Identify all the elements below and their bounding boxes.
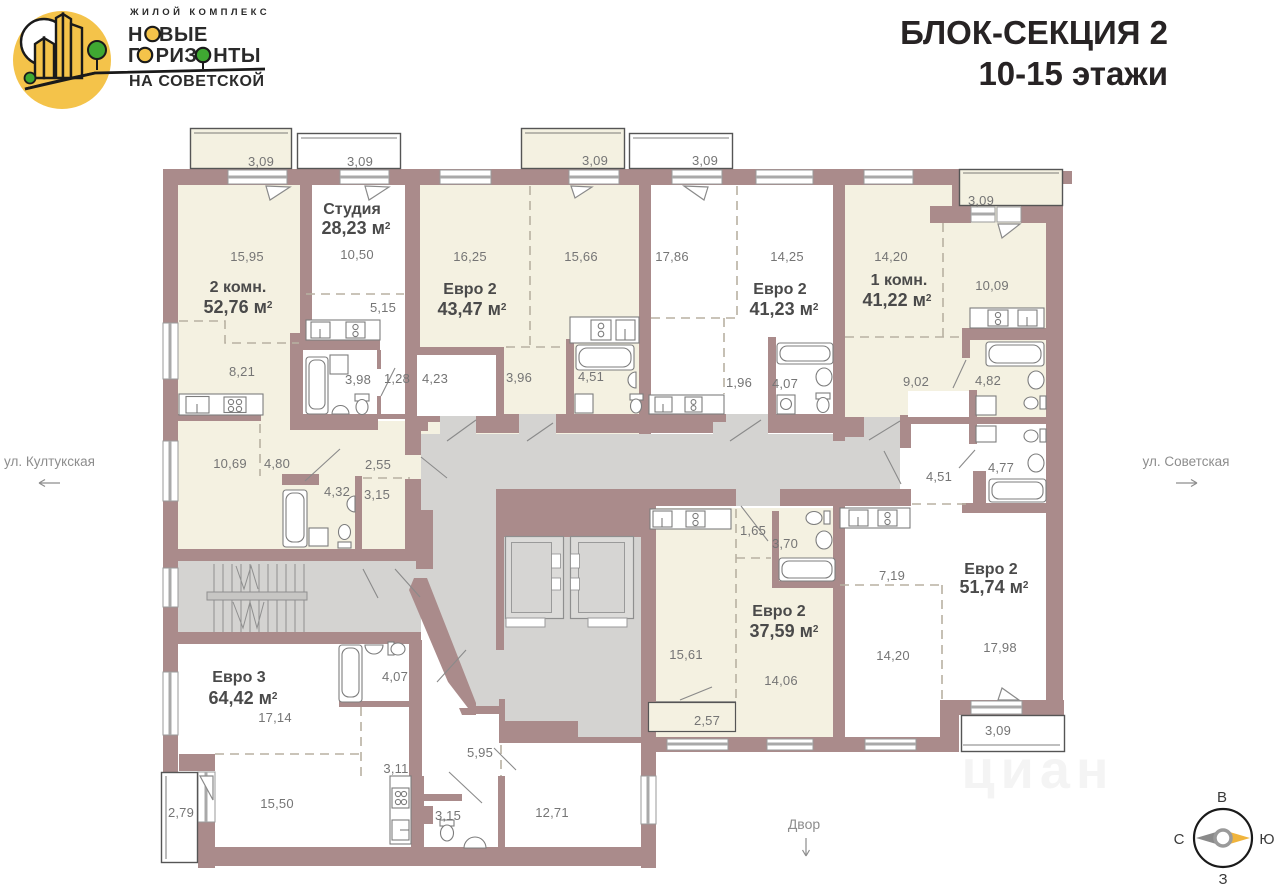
svg-text:15,66: 15,66 xyxy=(564,249,598,264)
svg-text:4,80: 4,80 xyxy=(264,456,290,471)
svg-text:12,71: 12,71 xyxy=(535,805,569,820)
svg-text:14,20: 14,20 xyxy=(874,249,908,264)
svg-text:Ю: Ю xyxy=(1259,831,1274,848)
svg-text:1 комн.: 1 комн. xyxy=(871,272,928,289)
svg-text:7,19: 7,19 xyxy=(879,568,905,583)
svg-text:Евро 2: Евро 2 xyxy=(964,561,1018,578)
svg-text:64,42 м2: 64,42 м2 xyxy=(209,688,278,708)
svg-text:3,09: 3,09 xyxy=(692,153,718,168)
svg-text:3,09: 3,09 xyxy=(347,154,373,169)
svg-text:41,22 м2: 41,22 м2 xyxy=(863,290,932,310)
svg-text:17,86: 17,86 xyxy=(655,249,689,264)
svg-text:Евро 2: Евро 2 xyxy=(752,603,806,620)
svg-text:15,61: 15,61 xyxy=(669,647,703,662)
svg-text:Евро 2: Евро 2 xyxy=(443,281,497,298)
svg-text:41,23 м2: 41,23 м2 xyxy=(750,299,819,319)
svg-text:14,06: 14,06 xyxy=(764,673,798,688)
svg-text:8,21: 8,21 xyxy=(229,364,255,379)
svg-text:2,79: 2,79 xyxy=(168,805,194,820)
svg-text:З: З xyxy=(1218,871,1227,886)
svg-text:3,96: 3,96 xyxy=(506,370,532,385)
svg-text:52,76 м2: 52,76 м2 xyxy=(204,297,273,317)
svg-text:ул. Советская: ул. Советская xyxy=(1143,454,1230,469)
svg-text:3,98: 3,98 xyxy=(345,372,371,387)
svg-text:1,96: 1,96 xyxy=(726,375,752,390)
svg-text:3,09: 3,09 xyxy=(968,193,994,208)
svg-text:17,14: 17,14 xyxy=(258,710,292,725)
svg-text:ул. Култукская: ул. Култукская xyxy=(4,454,95,469)
svg-text:1,65: 1,65 xyxy=(740,523,766,538)
svg-text:3,70: 3,70 xyxy=(772,536,798,551)
svg-text:4,77: 4,77 xyxy=(988,460,1014,475)
svg-text:3,15: 3,15 xyxy=(435,808,461,823)
svg-text:циан: циан xyxy=(961,740,1114,800)
svg-text:3,09: 3,09 xyxy=(248,154,274,169)
svg-text:16,25: 16,25 xyxy=(453,249,487,264)
svg-text:НА СОВЕТСКОЙ: НА СОВЕТСКОЙ xyxy=(129,71,265,90)
svg-text:4,51: 4,51 xyxy=(578,369,604,384)
svg-text:4,07: 4,07 xyxy=(382,669,408,684)
svg-text:НОВЫЕ: НОВЫЕ xyxy=(128,24,208,46)
svg-text:2,57: 2,57 xyxy=(694,713,720,728)
svg-text:5,15: 5,15 xyxy=(370,300,396,315)
svg-text:Евро 3: Евро 3 xyxy=(212,669,266,686)
svg-text:15,50: 15,50 xyxy=(260,796,294,811)
svg-text:4,23: 4,23 xyxy=(422,371,448,386)
svg-text:3,09: 3,09 xyxy=(582,153,608,168)
svg-text:14,25: 14,25 xyxy=(770,249,804,264)
svg-text:10,50: 10,50 xyxy=(340,247,374,262)
svg-text:Двор: Двор xyxy=(788,816,821,832)
svg-text:9,02: 9,02 xyxy=(903,374,929,389)
svg-text:43,47 м2: 43,47 м2 xyxy=(438,299,507,319)
svg-text:51,74 м2: 51,74 м2 xyxy=(960,577,1029,597)
svg-text:Студия: Студия xyxy=(323,201,381,218)
svg-text:10,69: 10,69 xyxy=(213,456,247,471)
svg-text:10,09: 10,09 xyxy=(975,278,1009,293)
svg-text:3,15: 3,15 xyxy=(364,487,390,502)
svg-text:28,23 м2: 28,23 м2 xyxy=(322,218,391,238)
svg-text:2,55: 2,55 xyxy=(365,457,391,472)
svg-text:10-15 этажи: 10-15 этажи xyxy=(978,55,1168,92)
svg-text:4,32: 4,32 xyxy=(324,484,350,499)
svg-text:4,82: 4,82 xyxy=(975,373,1001,388)
svg-text:3,11: 3,11 xyxy=(383,761,408,776)
svg-text:В: В xyxy=(1217,789,1227,806)
svg-text:17,98: 17,98 xyxy=(983,640,1017,655)
svg-text:4,07: 4,07 xyxy=(772,376,798,391)
svg-text:4,51: 4,51 xyxy=(926,469,952,484)
svg-text:14,20: 14,20 xyxy=(876,648,910,663)
svg-text:2 комн.: 2 комн. xyxy=(210,279,267,296)
svg-text:Евро 2: Евро 2 xyxy=(753,281,807,298)
svg-text:15,95: 15,95 xyxy=(230,249,264,264)
svg-text:ЖИЛОЙ КОМПЛЕКС: ЖИЛОЙ КОМПЛЕКС xyxy=(129,6,270,18)
svg-text:1,28: 1,28 xyxy=(384,371,410,386)
svg-text:37,59 м2: 37,59 м2 xyxy=(750,621,819,641)
svg-text:С: С xyxy=(1174,831,1185,848)
svg-text:5,95: 5,95 xyxy=(467,745,493,760)
svg-text:БЛОК-СЕКЦИЯ 2: БЛОК-СЕКЦИЯ 2 xyxy=(900,14,1168,51)
svg-text:3,09: 3,09 xyxy=(985,723,1011,738)
